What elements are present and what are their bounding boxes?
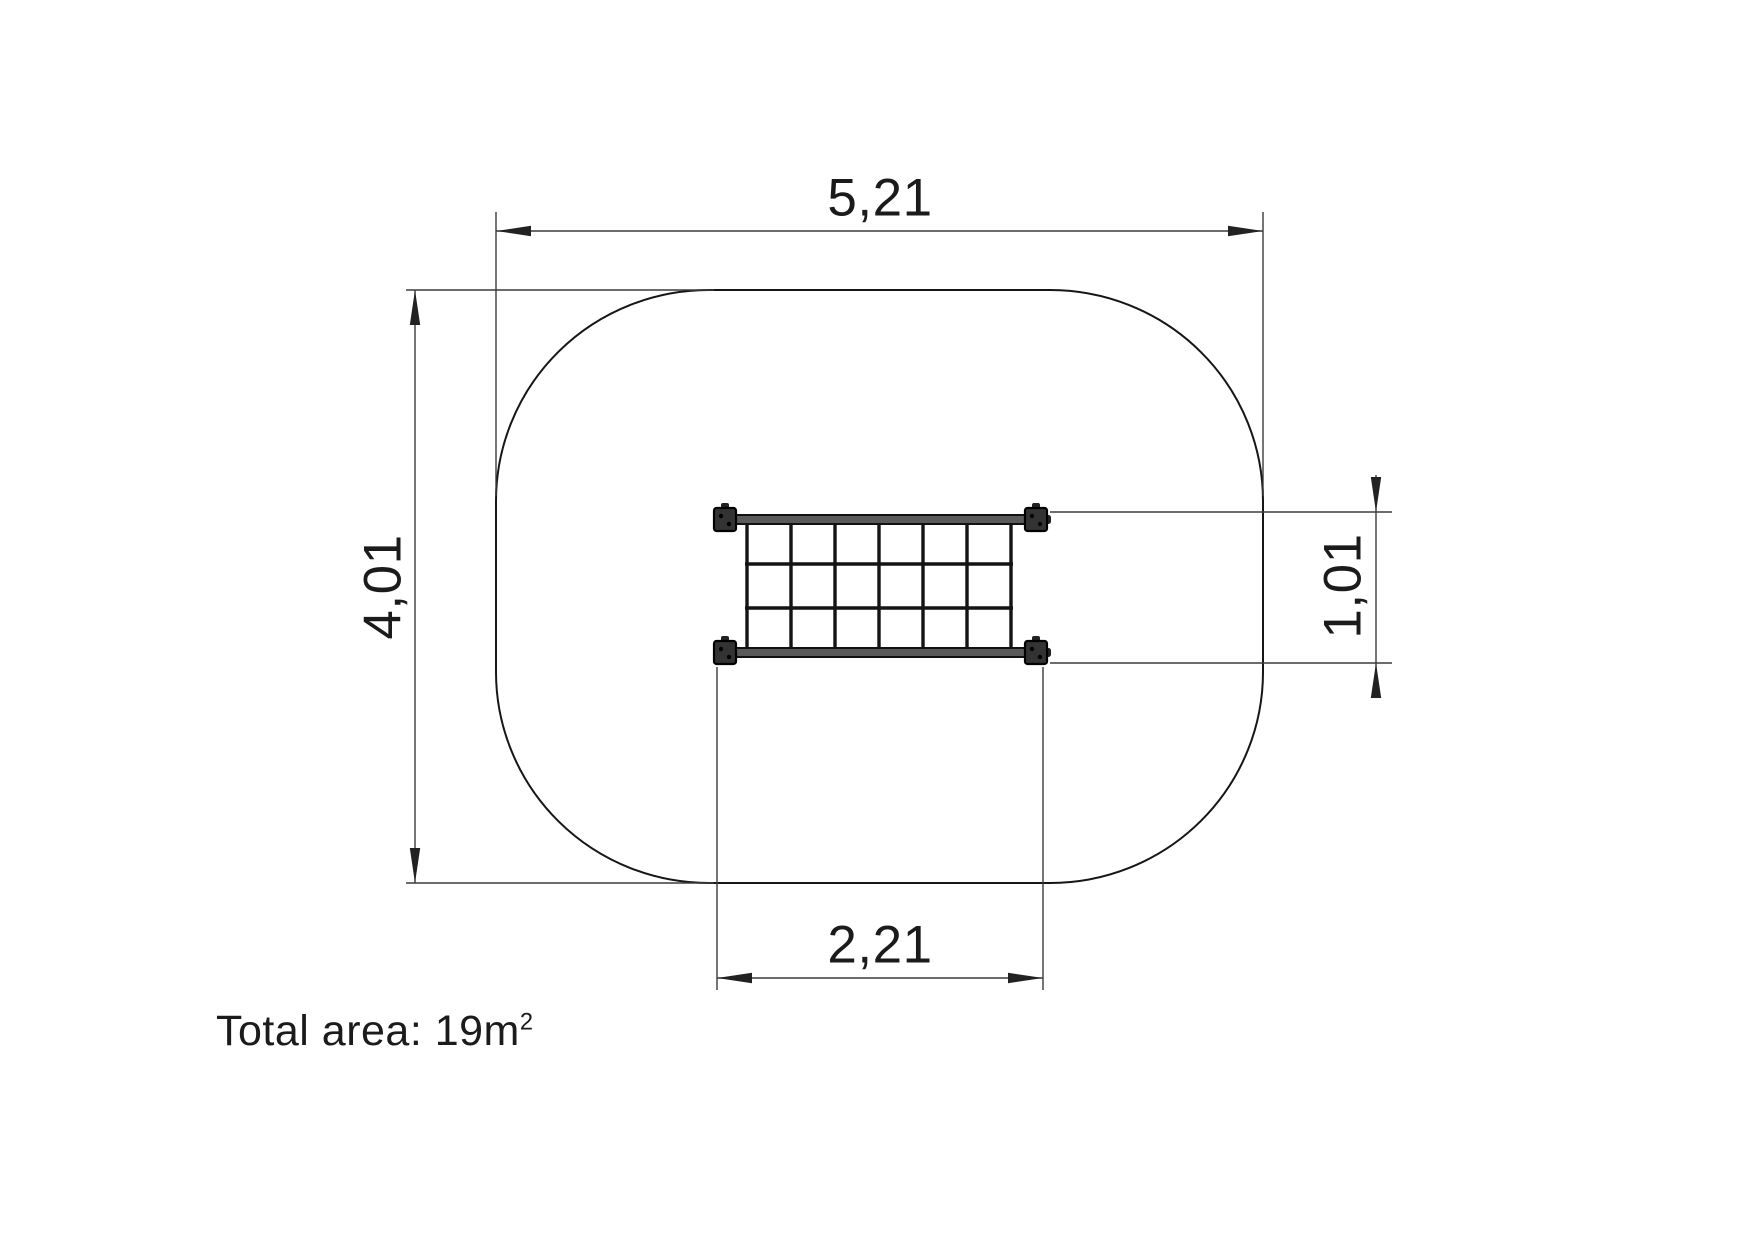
arrow-net-width-right-icon bbox=[1008, 973, 1043, 983]
arrow-net-width-left-icon bbox=[717, 973, 752, 983]
drawing-sheet: 5,21 4,01 1,01 2,21 Total area: 19m2 bbox=[0, 0, 1754, 1240]
net-rail-top bbox=[732, 515, 1029, 524]
arrow-width-right-icon bbox=[1228, 226, 1263, 236]
total-area-superscript: 2 bbox=[520, 1010, 534, 1036]
arrow-height-top-icon bbox=[410, 290, 420, 325]
net-rail-bottom bbox=[732, 648, 1029, 657]
arrow-height-bottom-icon bbox=[410, 848, 420, 883]
post-bolt bbox=[1030, 647, 1034, 651]
net-post-top-left bbox=[714, 508, 736, 531]
post-bolt bbox=[1038, 522, 1042, 526]
net-ropes bbox=[745, 519, 1013, 653]
climbing-net bbox=[714, 503, 1051, 664]
post-bolt bbox=[719, 647, 723, 651]
total-area-label: Total area: 19m2 bbox=[216, 1008, 534, 1055]
dim-net-width-label: 2,21 bbox=[827, 919, 932, 972]
post-bolt bbox=[1030, 514, 1034, 518]
arrow-width-left-icon bbox=[496, 226, 531, 236]
dim-width-label: 5,21 bbox=[827, 172, 932, 225]
extension-lines bbox=[406, 212, 1392, 990]
post-bolt bbox=[727, 522, 731, 526]
arrow-net-height-bottom-icon bbox=[1371, 663, 1381, 698]
net-posts bbox=[714, 503, 1051, 664]
dimension-lines bbox=[415, 231, 1376, 978]
arrow-net-height-top-icon bbox=[1371, 477, 1381, 512]
dimension-arrowheads bbox=[410, 226, 1381, 983]
net-post-bottom-right bbox=[1025, 641, 1047, 664]
net-post-bottom-left bbox=[714, 641, 736, 664]
dim-net-height-label: 1,01 bbox=[1317, 533, 1370, 638]
post-bolt bbox=[727, 655, 731, 659]
post-bolt bbox=[1038, 655, 1042, 659]
net-post-top-right bbox=[1025, 508, 1047, 531]
post-bolt bbox=[719, 514, 723, 518]
dim-height-label: 4,01 bbox=[357, 534, 410, 639]
total-area-text: Total area: 19m bbox=[216, 1007, 520, 1055]
